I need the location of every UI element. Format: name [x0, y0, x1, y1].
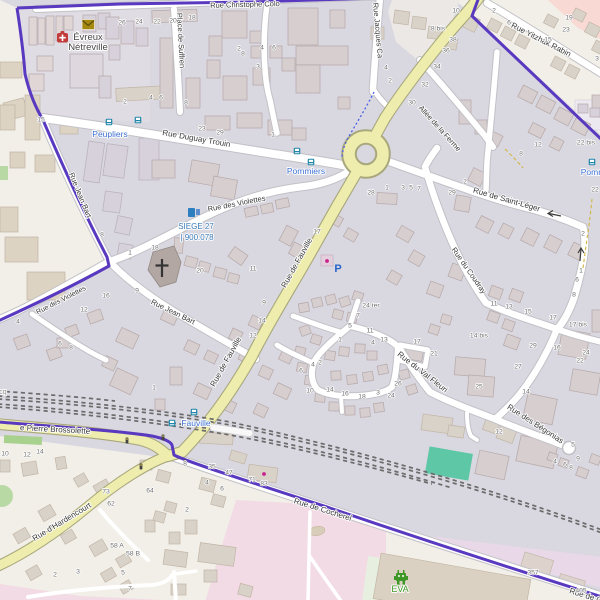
svg-text:14: 14: [36, 448, 44, 455]
svg-text:3: 3: [256, 63, 260, 70]
svg-text:9: 9: [576, 455, 580, 462]
svg-text:9: 9: [262, 299, 266, 306]
svg-text:6: 6: [159, 94, 163, 101]
svg-text:3: 3: [595, 55, 599, 62]
svg-text:11: 11: [366, 327, 373, 334]
svg-text:23: 23: [562, 26, 570, 33]
svg-text:2: 2: [463, 178, 467, 185]
svg-text:1: 1: [338, 336, 342, 343]
svg-text:38: 38: [449, 36, 457, 43]
svg-text:71: 71: [248, 476, 256, 483]
svg-text:24 ter: 24 ter: [362, 302, 380, 309]
svg-text:15: 15: [524, 308, 532, 315]
svg-text:15: 15: [544, 36, 552, 43]
svg-text:24: 24: [582, 349, 590, 356]
svg-text:5: 5: [348, 322, 352, 329]
svg-text:9: 9: [135, 287, 139, 294]
svg-text:P: P: [334, 263, 341, 275]
svg-text:24: 24: [135, 18, 143, 25]
svg-text:1: 1: [385, 184, 389, 191]
svg-text:34: 34: [433, 63, 441, 70]
svg-text:1: 1: [152, 384, 156, 391]
svg-text:Nétreville: Nétreville: [68, 42, 108, 53]
svg-text:3: 3: [401, 184, 405, 191]
svg-text:| 900.078: | 900.078: [180, 233, 214, 242]
svg-text:21: 21: [430, 350, 438, 357]
svg-text:8: 8: [569, 464, 573, 471]
svg-text:32: 32: [421, 81, 429, 88]
svg-text:4: 4: [311, 361, 315, 368]
svg-text:6: 6: [563, 461, 567, 468]
svg-text:73: 73: [102, 488, 110, 495]
svg-text:25: 25: [475, 383, 483, 390]
svg-text:1: 1: [271, 131, 275, 138]
svg-text:4: 4: [16, 318, 20, 325]
svg-text:20: 20: [196, 267, 204, 274]
svg-text:29: 29: [529, 342, 537, 349]
svg-text:6: 6: [507, 19, 511, 26]
svg-text:29: 29: [216, 129, 224, 136]
svg-text:4: 4: [205, 479, 209, 486]
svg-text:26: 26: [118, 19, 126, 26]
svg-text:26: 26: [394, 380, 402, 387]
svg-text:4: 4: [371, 339, 375, 346]
svg-text:30: 30: [408, 99, 416, 106]
svg-text:12: 12: [23, 451, 31, 458]
svg-text:64: 64: [146, 487, 154, 494]
svg-text:13: 13: [505, 303, 513, 310]
svg-text:12: 12: [534, 141, 542, 148]
svg-text:Fauville: Fauville: [181, 418, 211, 428]
svg-text:EVA: EVA: [391, 584, 408, 594]
svg-text:47: 47: [225, 469, 233, 476]
svg-text:2: 2: [492, 7, 496, 14]
svg-text:3: 3: [376, 389, 380, 396]
svg-text:4: 4: [384, 64, 388, 71]
svg-text:22: 22: [576, 357, 584, 364]
svg-text:35: 35: [208, 463, 216, 470]
svg-text:4: 4: [553, 458, 557, 465]
svg-text:8: 8: [183, 460, 187, 467]
svg-text:5: 5: [571, 441, 575, 448]
svg-text:4: 4: [149, 94, 153, 101]
svg-text:12: 12: [495, 428, 503, 435]
svg-text:2: 2: [388, 77, 392, 84]
svg-text:14: 14: [326, 386, 334, 393]
svg-text:3: 3: [76, 568, 80, 575]
svg-text:22 bis: 22 bis: [577, 139, 596, 146]
svg-text:5: 5: [121, 569, 125, 576]
svg-text:28: 28: [367, 189, 375, 196]
svg-text:27: 27: [514, 363, 522, 370]
svg-text:11: 11: [249, 265, 256, 272]
svg-text:1: 1: [128, 249, 132, 256]
svg-text:22: 22: [591, 186, 599, 193]
svg-text:2: 2: [123, 98, 127, 105]
svg-text:36: 36: [442, 47, 450, 54]
svg-text:16: 16: [341, 390, 349, 397]
svg-text:6: 6: [272, 44, 276, 51]
svg-text:22: 22: [153, 18, 161, 25]
svg-text:SIEGE 27: SIEGE 27: [178, 222, 214, 231]
svg-text:17 bis: 17 bis: [569, 321, 588, 328]
svg-text:7: 7: [417, 185, 421, 192]
svg-text:357: 357: [527, 569, 539, 576]
svg-text:405: 405: [575, 587, 587, 594]
svg-text:16: 16: [102, 292, 110, 299]
svg-text:62: 62: [107, 500, 115, 507]
svg-text:14 bis: 14 bis: [470, 332, 489, 339]
svg-text:24: 24: [387, 392, 395, 399]
svg-text:11: 11: [490, 300, 497, 307]
svg-text:10: 10: [452, 7, 460, 14]
svg-text:10: 10: [1, 450, 9, 457]
svg-text:6: 6: [299, 367, 303, 374]
svg-text:14: 14: [258, 317, 266, 324]
svg-text:2: 2: [581, 230, 585, 237]
svg-text:8: 8: [69, 344, 73, 351]
svg-text:18: 18: [188, 14, 196, 21]
svg-text:6: 6: [220, 485, 224, 492]
svg-text:17: 17: [549, 314, 557, 321]
svg-text:Pommiers: Pommiers: [287, 166, 325, 176]
svg-text:19: 19: [565, 14, 573, 21]
svg-text:2: 2: [185, 506, 189, 513]
svg-text:8: 8: [572, 291, 576, 298]
svg-text:5: 5: [409, 184, 413, 191]
svg-text:2: 2: [318, 359, 322, 366]
svg-text:10: 10: [306, 387, 314, 394]
svg-text:7: 7: [128, 585, 132, 592]
svg-text:15: 15: [37, 116, 45, 123]
svg-text:7: 7: [356, 312, 360, 319]
svg-text:8: 8: [519, 150, 523, 157]
svg-text:8: 8: [241, 50, 245, 57]
svg-text:cq: cq: [0, 389, 7, 396]
svg-text:1: 1: [579, 267, 583, 274]
svg-text:6: 6: [575, 276, 579, 283]
svg-text:12: 12: [249, 332, 257, 339]
svg-text:14: 14: [522, 388, 530, 395]
svg-text:Pomm: Pomm: [581, 167, 600, 177]
svg-text:13: 13: [380, 336, 388, 343]
svg-text:58 B: 58 B: [126, 550, 140, 557]
svg-text:18: 18: [358, 393, 366, 400]
svg-text:20: 20: [169, 17, 177, 24]
svg-text:Peupliers: Peupliers: [92, 129, 127, 139]
svg-text:8: 8: [184, 99, 188, 106]
svg-text:8 bis: 8 bis: [431, 25, 446, 32]
svg-text:12: 12: [80, 306, 88, 313]
svg-text:17: 17: [413, 338, 421, 345]
svg-text:17: 17: [313, 228, 321, 235]
svg-text:23: 23: [198, 125, 206, 132]
svg-text:18: 18: [151, 244, 159, 251]
svg-text:16: 16: [553, 344, 561, 351]
svg-text:83: 83: [260, 480, 268, 487]
svg-text:58 A: 58 A: [110, 542, 124, 549]
svg-text:6: 6: [58, 340, 62, 347]
svg-text:8: 8: [100, 231, 104, 238]
svg-text:29: 29: [448, 189, 456, 196]
svg-text:2: 2: [53, 571, 57, 578]
svg-text:4: 4: [260, 44, 264, 51]
